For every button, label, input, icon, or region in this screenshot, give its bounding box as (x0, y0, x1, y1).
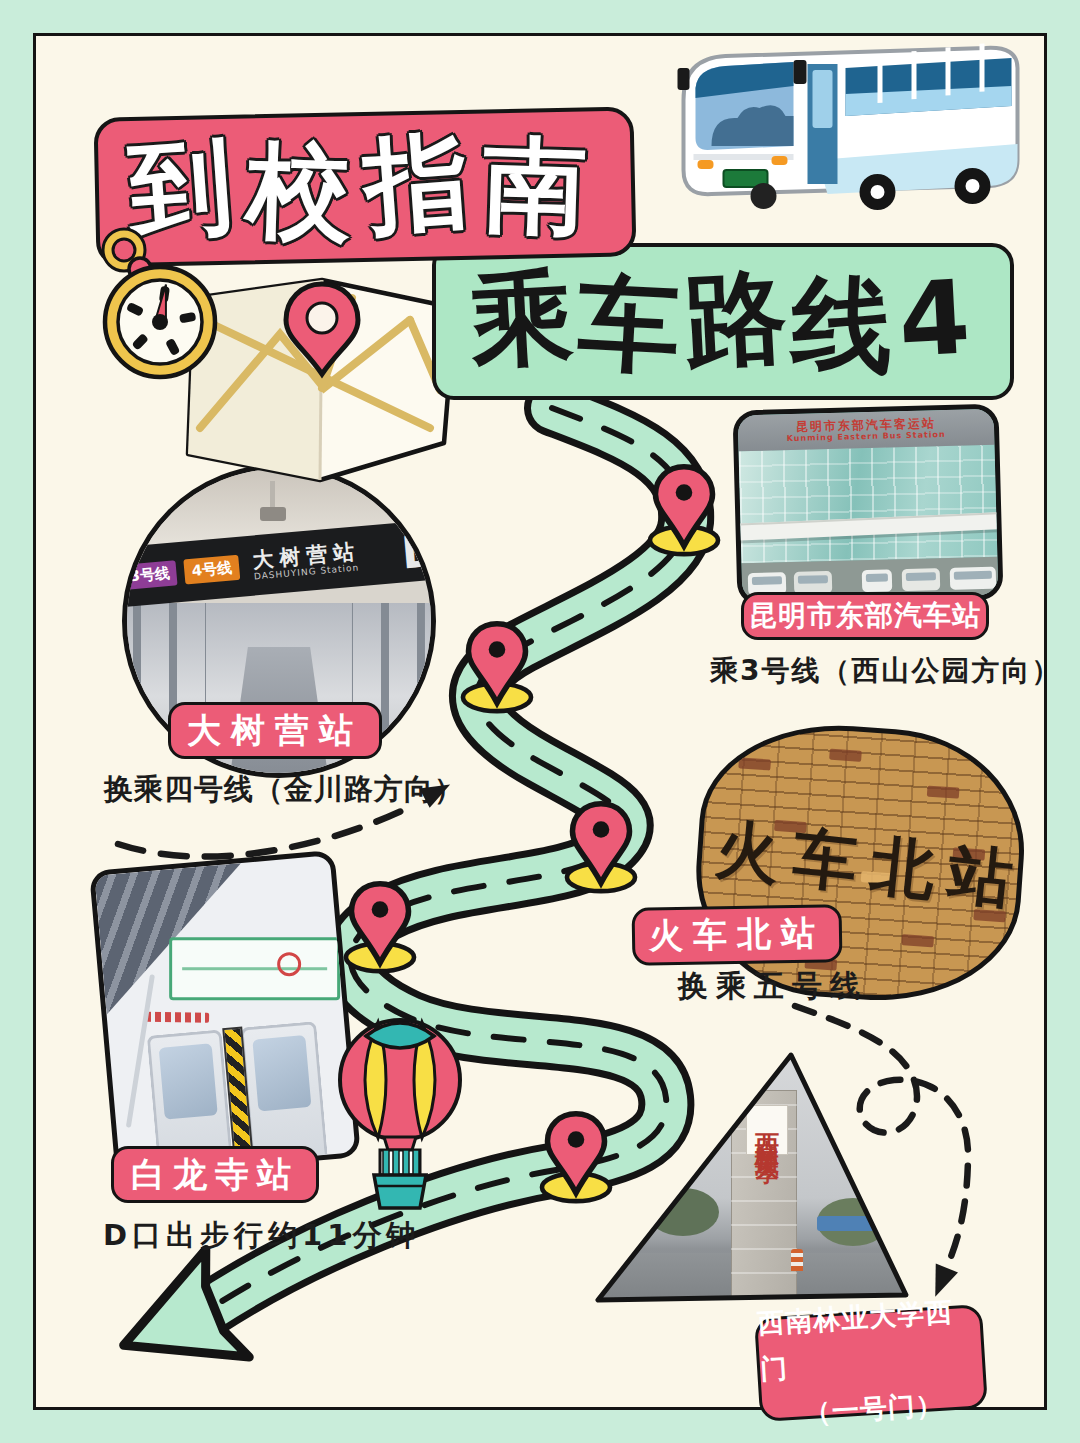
station-label-gate: 西南林业大学西门 （一号门） (754, 1304, 988, 1422)
map-pin-icon (567, 804, 635, 891)
note-eastbus-line: 乘3号线（西山公园方向） (710, 652, 1061, 690)
door-window (159, 1044, 218, 1120)
door-window (253, 1035, 312, 1111)
train-door (240, 1021, 327, 1161)
note-bailongsi-walk: D口出步行约11分钟 (103, 1216, 420, 1256)
van (862, 569, 893, 592)
station-label-huochebei: 火车北站 (632, 904, 843, 966)
station-label-bailongsi: 白龙寺站 (111, 1146, 319, 1203)
map-pin-icon (346, 884, 414, 971)
photo-university-gate: 西南林業大學 (595, 1050, 910, 1305)
route-map-sign (169, 937, 340, 1000)
photo-train-interior (89, 850, 361, 1178)
led-display (145, 1012, 209, 1023)
van (902, 568, 941, 591)
note-huochebei-transfer: 换乘五号线 (678, 966, 868, 1007)
station-label-east-bus: 昆明市东部汽车站 (741, 592, 989, 640)
bus-illustration (665, 42, 1040, 242)
station-sign-name: 大树营站 DASHUYING Station (251, 540, 361, 582)
page-subtitle: 乘车路线4 (471, 271, 975, 373)
map-pin-icon (650, 467, 718, 554)
arrival-guide-poster: 到校指南 乘车路线4 3号线 4号线 大树营站 DASHUYING Statio… (0, 0, 1080, 1443)
gate-photo-border (595, 1050, 910, 1305)
photo-east-bus-station: 昆明市东部汽车客运站 Kunming Eastern Bus Station (732, 404, 1003, 607)
map-pin-icon (463, 624, 531, 711)
hot-air-balloon-icon (328, 1010, 478, 1215)
glass-facade (739, 445, 998, 564)
line4-badge: 4号线 (183, 554, 239, 584)
stopwatch-icon (82, 220, 232, 390)
note-dashuying-transfer: 换乘四号线（金川路方向） (104, 770, 464, 810)
station-label-dashuying: 大树营站 (168, 702, 382, 759)
gate-label-line1: 西南林业大学西门 (756, 1288, 983, 1393)
gate-label-line2: （一号门） (803, 1382, 946, 1436)
building-sign: 昆明市东部汽车客运站 Kunming Eastern Bus Station (738, 409, 995, 452)
subtitle-banner: 乘车路线4 (432, 243, 1014, 400)
van (950, 567, 997, 590)
van (794, 571, 833, 594)
